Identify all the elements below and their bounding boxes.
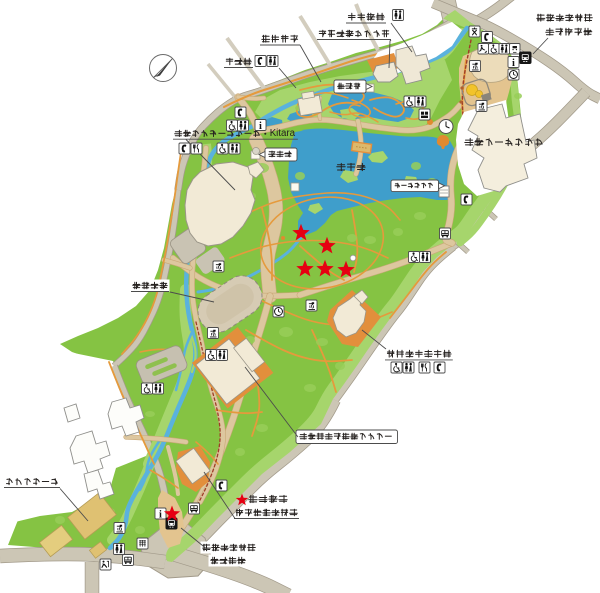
svg-text:i: i xyxy=(512,58,515,69)
svg-text:Kitara: Kitara xyxy=(270,128,296,139)
svg-text:i: i xyxy=(259,121,262,132)
svg-text:i: i xyxy=(159,509,162,520)
